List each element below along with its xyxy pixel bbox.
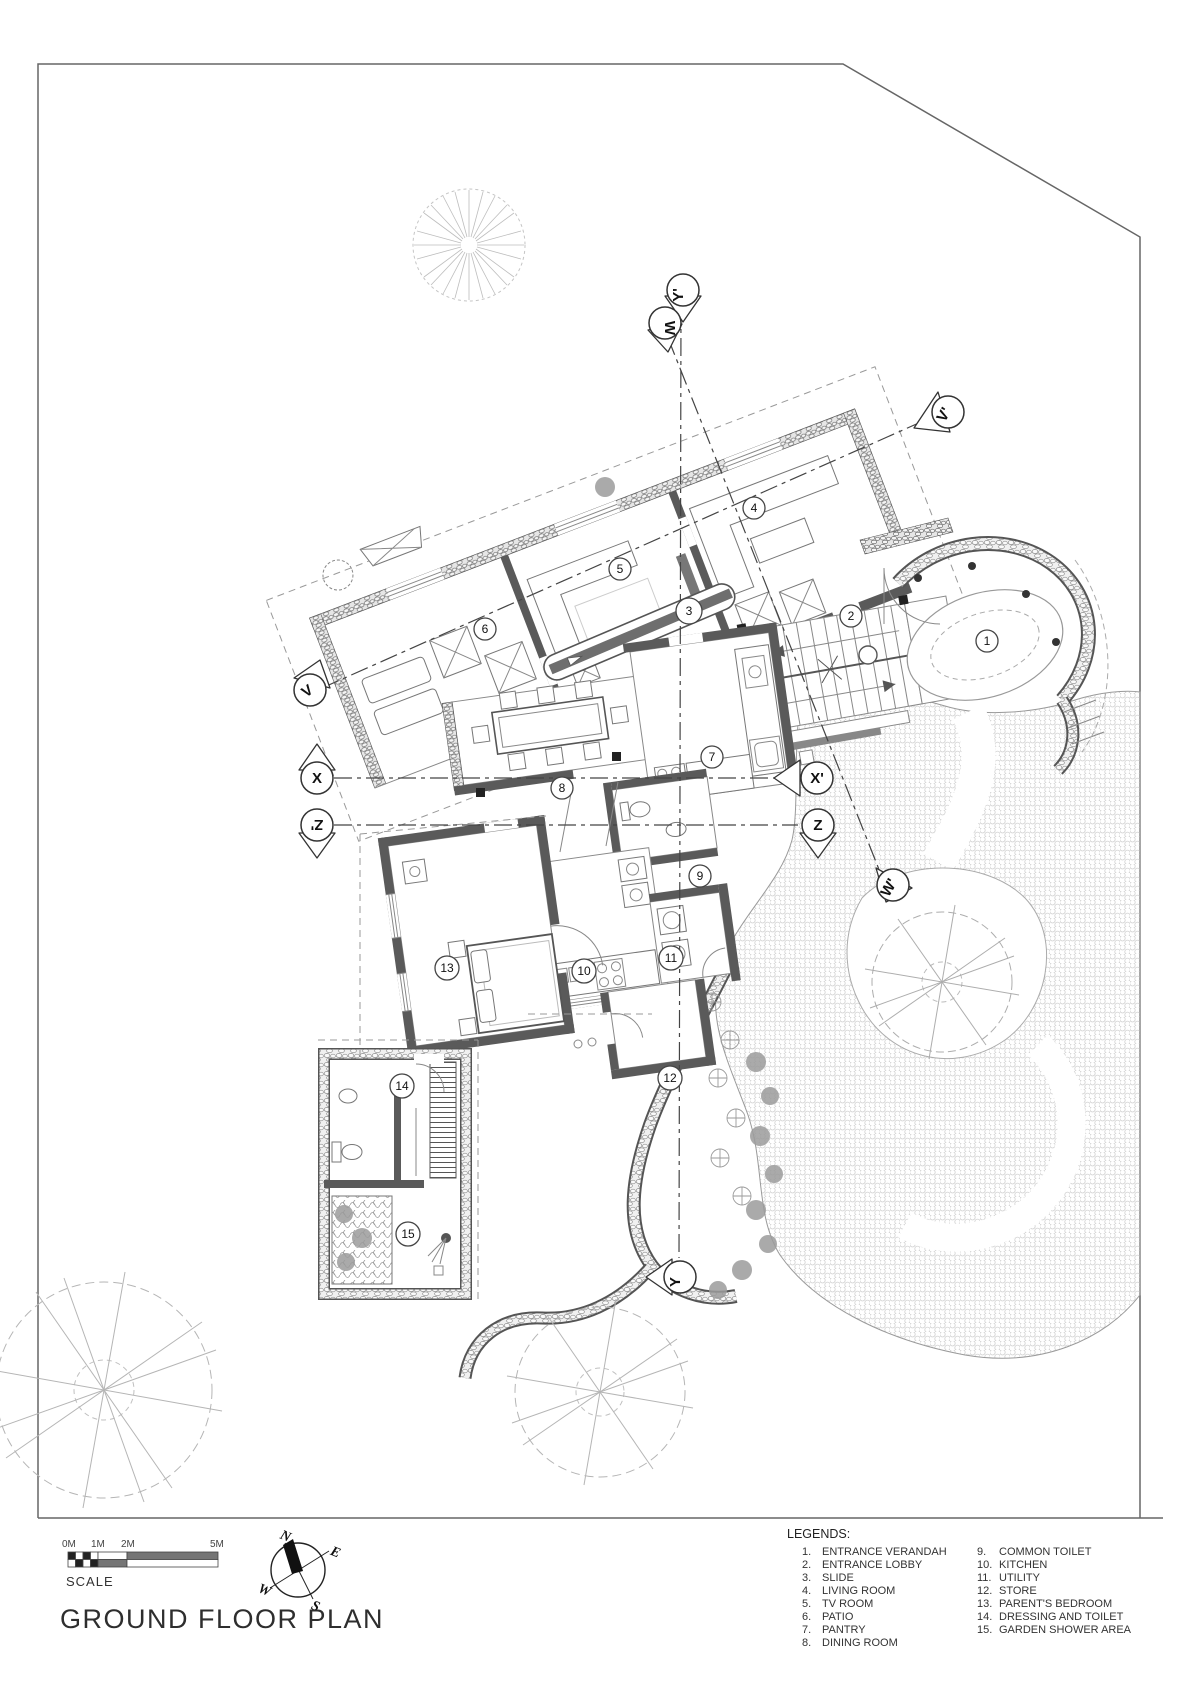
- column-sq: [612, 752, 621, 761]
- legend-item: COMMON TOILET: [999, 1546, 1092, 1558]
- room-badge-4: 4: [743, 497, 765, 519]
- svg-text:Z: Z: [813, 817, 822, 834]
- legend-heading: LEGENDS:: [787, 1527, 850, 1541]
- svg-text:14.: 14.: [977, 1611, 992, 1623]
- svg-text:13.: 13.: [977, 1598, 992, 1610]
- room-badge-5: 5: [609, 558, 631, 580]
- svg-text:Y': Y': [670, 288, 687, 302]
- svg-text:11.: 11.: [977, 1572, 991, 1584]
- column-sq: [476, 788, 485, 797]
- scale-tick-5m: 5M: [210, 1539, 224, 1550]
- side-table: [448, 940, 466, 958]
- svg-text:9.: 9.: [977, 1546, 986, 1558]
- room-badge-11: 11: [659, 946, 683, 970]
- legend-item: LIVING ROOM: [822, 1585, 895, 1597]
- pantry: [623, 622, 799, 803]
- svg-text:2.: 2.: [802, 1559, 811, 1571]
- svg-text:8.: 8.: [802, 1637, 811, 1649]
- svg-text:1.: 1.: [802, 1546, 811, 1558]
- room-badge-7: 7: [701, 746, 723, 768]
- scale-label: SCALE: [66, 1574, 114, 1589]
- washer: [657, 905, 686, 934]
- svg-text:X': X': [810, 770, 824, 787]
- tree-bottom-left: [0, 1272, 222, 1508]
- section-marker-z-prime: Z': [299, 809, 335, 858]
- legend-item: PATIO: [822, 1611, 854, 1623]
- wardrobe: [430, 1062, 456, 1178]
- room-badge-9: 9: [689, 865, 711, 887]
- legend-item: KITCHEN: [999, 1559, 1047, 1571]
- tree-top-left: [413, 189, 525, 301]
- column: [859, 646, 877, 664]
- svg-text:2: 2: [848, 609, 855, 623]
- svg-text:15.: 15.: [977, 1624, 992, 1636]
- section-marker-w: W: [648, 307, 682, 352]
- room-badge-10: 10: [572, 959, 596, 983]
- svg-text:11: 11: [665, 951, 678, 965]
- section-marker-v: V: [294, 660, 330, 706]
- svg-text:14: 14: [395, 1079, 409, 1093]
- scale-tick-2m: 2M: [121, 1539, 135, 1550]
- wc-bowl: [342, 1145, 362, 1160]
- svg-text:5.: 5.: [802, 1598, 811, 1610]
- legend-item: ENTRANCE VERANDAH: [822, 1546, 947, 1558]
- lawn-honeycomb: [715, 691, 1140, 1358]
- legend-item: SLIDE: [822, 1572, 854, 1584]
- legend: LEGENDS: 1.ENTRANCE VERANDAH 2.ENTRANCE …: [787, 1527, 1132, 1649]
- svg-text:Z': Z': [311, 816, 324, 833]
- svg-text:10: 10: [577, 964, 591, 978]
- svg-text:W: W: [661, 321, 678, 336]
- svg-text:10.: 10.: [977, 1559, 992, 1571]
- compass-w: W: [256, 1581, 275, 1600]
- svg-text:13: 13: [440, 961, 454, 975]
- section-marker-x: X: [299, 744, 335, 794]
- legend-col1: 1.ENTRANCE VERANDAH 2.ENTRANCE LOBBY 3.S…: [802, 1546, 947, 1649]
- room-badge-15: 15: [396, 1222, 420, 1246]
- room-badge-14: 14: [390, 1074, 414, 1098]
- svg-text:8: 8: [559, 781, 566, 795]
- legend-item: TV ROOM: [822, 1598, 873, 1610]
- svg-text:5: 5: [617, 562, 624, 576]
- room-badge-1: 1: [976, 630, 998, 652]
- page-title: GROUND FLOOR PLAN: [60, 1604, 384, 1634]
- shrub-cloud: [319, 556, 358, 595]
- room-badge-3: 3: [676, 598, 702, 624]
- legend-item: PANTRY: [822, 1624, 866, 1636]
- compass-e: E: [327, 1544, 342, 1562]
- tree-bottom-center: [507, 1299, 693, 1485]
- fridge: [622, 882, 651, 907]
- room-badge-2: 2: [840, 605, 862, 627]
- svg-text:6: 6: [482, 622, 489, 636]
- legend-item: DINING ROOM: [822, 1637, 898, 1649]
- svg-text:3: 3: [686, 604, 693, 618]
- legend-item: UTILITY: [999, 1572, 1041, 1584]
- section-marker-v-prime: V': [914, 392, 964, 432]
- north-compass: N E W S: [256, 1528, 343, 1616]
- floor-plan-canvas: DN UP: [0, 0, 1200, 1698]
- svg-text:9: 9: [697, 869, 704, 883]
- svg-text:6.: 6.: [802, 1611, 811, 1623]
- legend-item: ENTRANCE LOBBY: [822, 1559, 923, 1571]
- room-badge-8: 8: [551, 777, 573, 799]
- svg-text:12: 12: [663, 1071, 677, 1085]
- room-badge-6: 6: [474, 618, 496, 640]
- legend-col2: 9.COMMON TOILET 10.KITCHEN 11.UTILITY 12…: [977, 1546, 1132, 1636]
- scale-tick-0m: 0M: [62, 1539, 76, 1550]
- scale-bar: 0M 1M 2M 5M SCALE: [62, 1539, 224, 1589]
- svg-text:3.: 3.: [802, 1572, 811, 1584]
- svg-text:7.: 7.: [802, 1624, 811, 1636]
- legend-item: GARDEN SHOWER AREA: [999, 1624, 1132, 1636]
- legend-item: STORE: [999, 1585, 1037, 1597]
- room-badge-13: 13: [435, 956, 459, 980]
- legend-item: DRESSING AND TOILET: [999, 1611, 1124, 1623]
- legend-item: PARENT'S BEDROOM: [999, 1598, 1112, 1610]
- store: [600, 979, 716, 1080]
- svg-text:X: X: [312, 770, 322, 787]
- side-table: [459, 1018, 477, 1036]
- svg-text:4: 4: [751, 501, 758, 515]
- svg-text:15: 15: [401, 1227, 415, 1241]
- svg-text:Y: Y: [667, 1277, 684, 1287]
- wc-tank: [332, 1142, 341, 1162]
- dresser: [402, 859, 427, 884]
- scale-tick-1m: 1M: [91, 1539, 105, 1550]
- svg-text:4.: 4.: [802, 1585, 811, 1597]
- svg-text:7: 7: [709, 750, 716, 764]
- room-badge-12: 12: [658, 1066, 682, 1090]
- svg-text:12.: 12.: [977, 1585, 992, 1597]
- svg-text:1: 1: [984, 634, 991, 648]
- basin: [339, 1089, 357, 1103]
